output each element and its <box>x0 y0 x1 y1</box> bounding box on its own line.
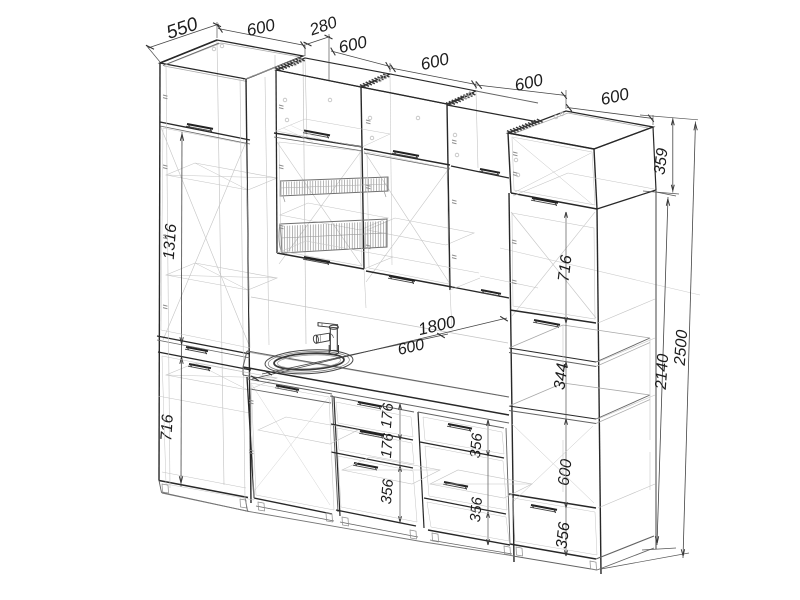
svg-text:356: 356 <box>553 521 573 550</box>
svg-text:359: 359 <box>651 147 671 176</box>
svg-text:716: 716 <box>158 414 177 442</box>
svg-text:2140: 2140 <box>653 353 673 391</box>
svg-text:1316: 1316 <box>161 223 180 260</box>
svg-text:176: 176 <box>378 432 397 459</box>
svg-text:2500: 2500 <box>672 329 692 367</box>
svg-text:344: 344 <box>551 362 571 391</box>
svg-text:176: 176 <box>378 402 397 429</box>
svg-text:716: 716 <box>555 254 575 283</box>
svg-text:356: 356 <box>467 496 486 523</box>
svg-text:356: 356 <box>378 478 397 505</box>
